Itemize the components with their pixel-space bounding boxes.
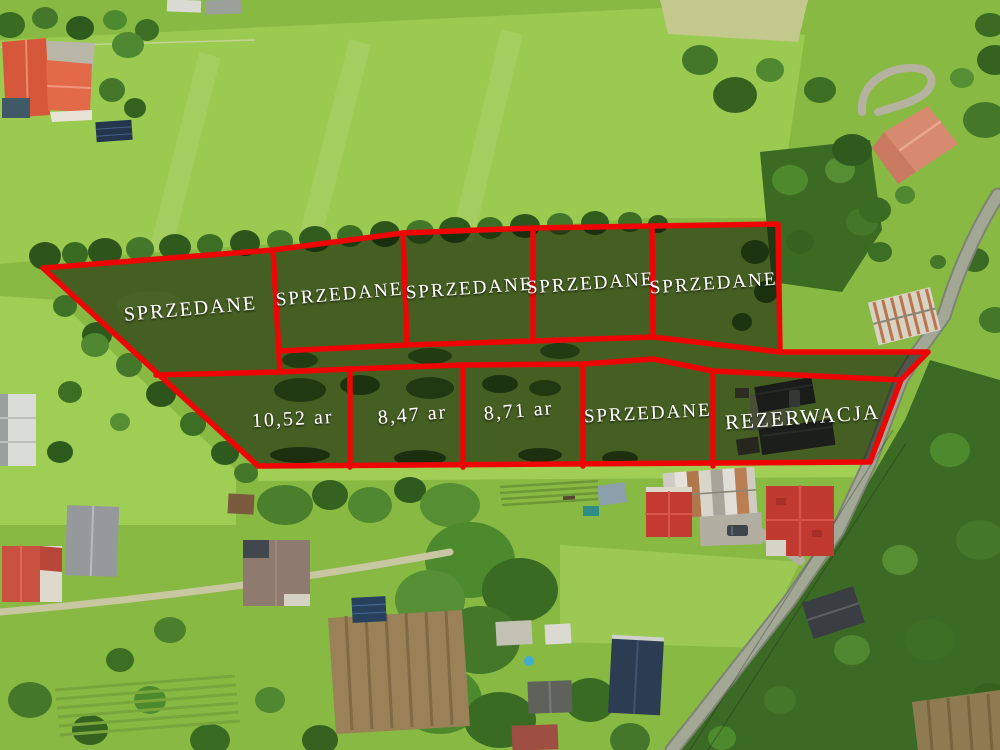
building-house-topleft	[2, 38, 95, 122]
building-brown-roof-bottom	[512, 724, 559, 750]
solar-panels-middle	[351, 596, 386, 623]
car-gray	[727, 525, 748, 536]
building-house-bottomleft	[2, 546, 62, 602]
tilled-field-center	[328, 610, 470, 734]
building-navy-house	[608, 635, 664, 716]
building-gray-barn-left	[65, 505, 119, 577]
building-red-house-b	[766, 486, 834, 556]
building-white-left-edge	[0, 394, 36, 466]
solar-panel-topleft	[95, 120, 132, 142]
building-gray-house-bottom	[527, 680, 572, 714]
aerial-photo: SPRZEDANE SPRZEDANE SPRZEDANE SPRZEDANE …	[0, 0, 1000, 750]
building-red-house-a	[646, 487, 692, 537]
parcel-label-bottom-1: 10,52 ar	[251, 406, 334, 432]
aerial-parcel-map: SPRZEDANE SPRZEDANE SPRZEDANE SPRZEDANE …	[0, 0, 1000, 750]
